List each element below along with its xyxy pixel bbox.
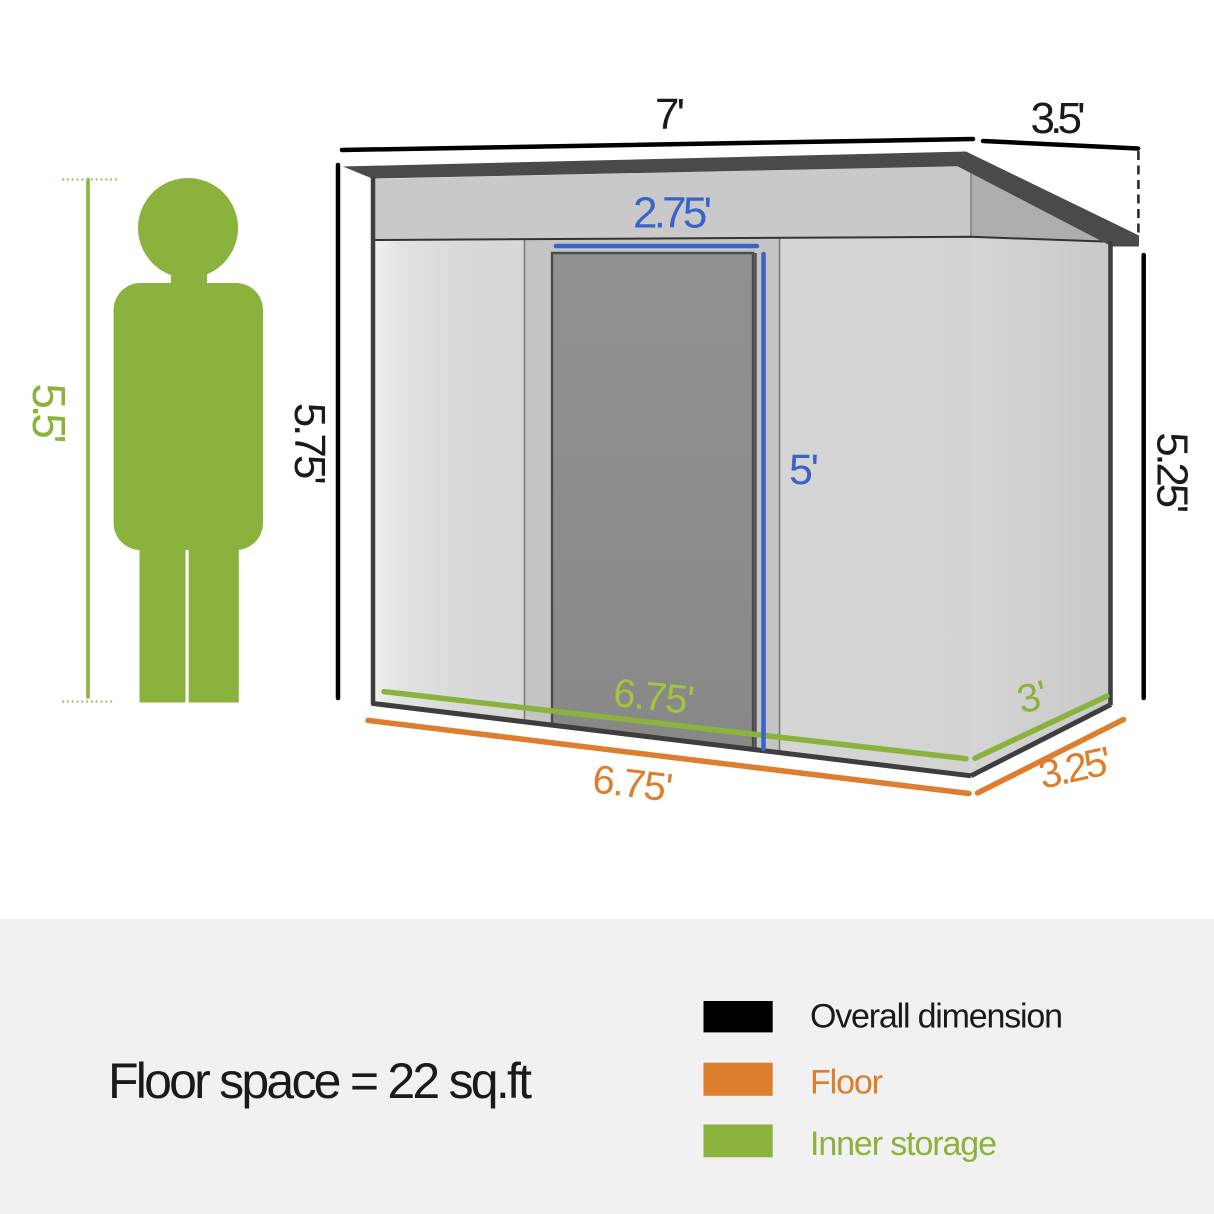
svg-text:7': 7' bbox=[655, 90, 685, 139]
svg-text:Inner storage: Inner storage bbox=[810, 1125, 997, 1163]
svg-text:Floor space = 22 sq.ft: Floor space = 22 sq.ft bbox=[108, 1053, 532, 1109]
svg-text:3.25': 3.25' bbox=[1035, 739, 1116, 798]
svg-text:5.75': 5.75' bbox=[285, 403, 334, 485]
svg-text:Overall dimension: Overall dimension bbox=[810, 997, 1063, 1035]
svg-text:6.75': 6.75' bbox=[611, 671, 696, 723]
svg-text:3.5': 3.5' bbox=[1031, 94, 1086, 143]
svg-text:5.5': 5.5' bbox=[23, 383, 75, 443]
svg-text:2.75': 2.75' bbox=[633, 189, 712, 238]
svg-text:5': 5' bbox=[789, 446, 819, 494]
svg-text:5.25': 5.25' bbox=[1148, 432, 1197, 513]
svg-text:Floor: Floor bbox=[810, 1064, 883, 1102]
svg-text:6.75': 6.75' bbox=[590, 757, 675, 810]
